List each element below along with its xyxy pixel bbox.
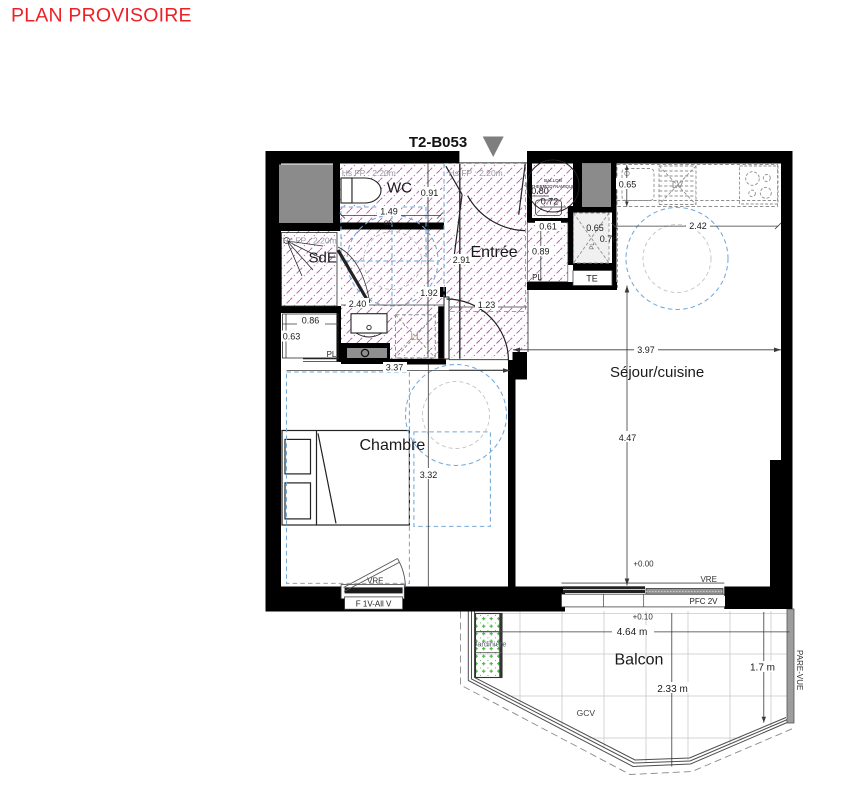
svg-text:LL: LL	[410, 332, 422, 343]
svg-text:PL: PL	[532, 273, 542, 282]
svg-text:PL: PL	[327, 350, 337, 359]
svg-text:0.91: 0.91	[421, 188, 439, 198]
svg-text:TE: TE	[586, 274, 598, 284]
svg-text:PFC 2V: PFC 2V	[689, 597, 718, 606]
svg-text:1.7 m: 1.7 m	[750, 663, 775, 674]
svg-text:CD: CD	[384, 220, 394, 227]
svg-text:4.47: 4.47	[619, 433, 637, 443]
svg-text:3.97: 3.97	[637, 345, 655, 355]
svg-text:0.61: 0.61	[539, 222, 557, 232]
svg-text:Entrée: Entrée	[471, 244, 518, 261]
svg-text:F 1V-All V: F 1V-All V	[356, 599, 392, 608]
svg-text:2.42: 2.42	[689, 221, 707, 231]
svg-text:Jardinière: Jardinière	[474, 640, 507, 649]
svg-text:0.76: 0.76	[600, 234, 618, 244]
svg-text:2.40: 2.40	[349, 299, 367, 309]
svg-text:2.33 m: 2.33 m	[657, 684, 688, 695]
svg-text:1.23: 1.23	[478, 300, 496, 310]
svg-text:3.37: 3.37	[386, 363, 404, 373]
svg-text:LV: LV	[672, 180, 684, 191]
svg-text:T2-B053: T2-B053	[409, 134, 467, 151]
svg-text:+0.00: +0.00	[633, 560, 654, 569]
svg-text:0.65: 0.65	[586, 223, 604, 233]
svg-text:0.65: 0.65	[619, 180, 637, 190]
svg-text:0.89: 0.89	[532, 247, 550, 257]
svg-text:WC: WC	[387, 180, 412, 197]
svg-text:Séjour/cuisine: Séjour/cuisine	[610, 364, 704, 381]
svg-text:GCV: GCV	[577, 708, 596, 718]
svg-text:BALLON: BALLON	[544, 178, 562, 183]
svg-text:0.72: 0.72	[541, 197, 559, 207]
svg-text:PL: PL	[590, 242, 596, 250]
svg-text:3.32: 3.32	[420, 470, 438, 480]
svg-text:Balcon: Balcon	[615, 652, 664, 669]
svg-text:PARE-VUE: PARE-VUE	[795, 650, 804, 690]
svg-text:1.92: 1.92	[420, 288, 438, 298]
svg-text:Hs FP : 2.20m: Hs FP : 2.20m	[342, 168, 396, 178]
svg-text:SdE: SdE	[309, 250, 337, 267]
svg-text:0.86: 0.86	[302, 316, 320, 326]
svg-text:Hs FP : 2.20m: Hs FP : 2.20m	[449, 168, 503, 178]
svg-text:0.80: 0.80	[531, 186, 549, 196]
svg-text:1.49: 1.49	[380, 207, 398, 217]
svg-text:VRE: VRE	[700, 575, 716, 584]
svg-text:0.63: 0.63	[283, 332, 301, 342]
svg-text:2.91: 2.91	[453, 255, 471, 265]
svg-text:Chambre: Chambre	[360, 437, 426, 454]
svg-text:Hs FP : 2.20m: Hs FP : 2.20m	[283, 236, 337, 246]
svg-text:4.64 m: 4.64 m	[617, 627, 648, 638]
svg-text:+0.10: +0.10	[633, 613, 654, 622]
svg-text:PLAN PROVISOIRE: PLAN PROVISOIRE	[11, 5, 192, 27]
